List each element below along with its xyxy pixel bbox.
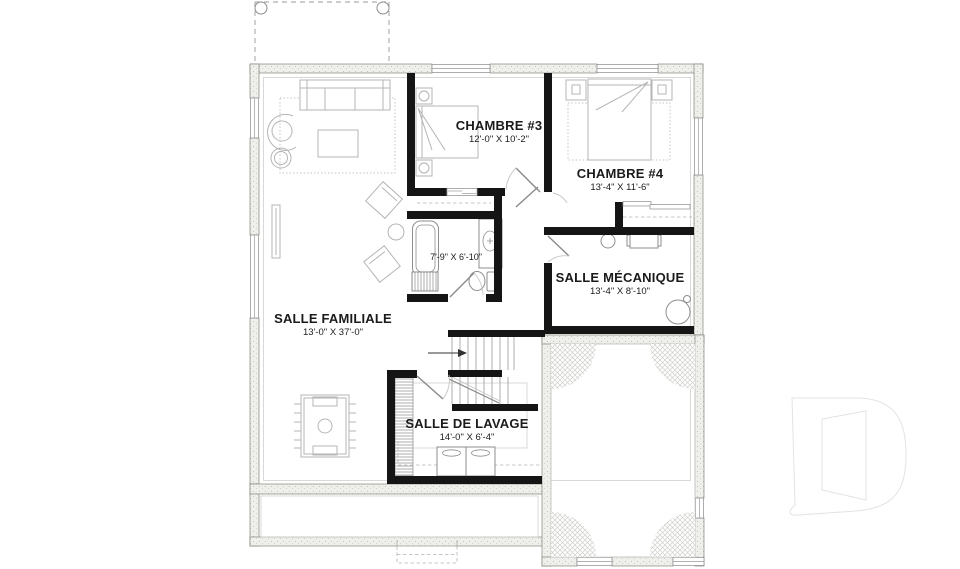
room-dims: 12'-0" X 10'-2" [456, 134, 543, 145]
window-icon [696, 498, 704, 518]
garage-door-icon [673, 558, 704, 566]
room-label-salle-de-lavage: SALLE DE LAVAGE 14'-0" X 6'-4" [405, 416, 528, 443]
deck-post-icon [255, 2, 267, 14]
ottoman [271, 148, 291, 168]
room-label-salle-familiale: SALLE FAMILIALE 13'-0" X 37'-0" [274, 311, 392, 338]
window-icon [577, 558, 612, 566]
linen-shelf [412, 272, 438, 291]
corner-hatch [551, 512, 596, 557]
window-icon [695, 118, 703, 175]
window-icon [432, 65, 490, 73]
nightstand [652, 80, 672, 100]
room-label-bathroom-dims: 7'-9" X 6'-10" [430, 251, 482, 262]
nightstand [416, 88, 432, 104]
pipe-icon [684, 296, 691, 303]
foosball-table [294, 395, 356, 457]
deck-post-icon [377, 2, 389, 14]
room-name: CHAMBRE #4 [577, 166, 664, 181]
room-label-salle-mecanique: SALLE MÉCANIQUE 13'-4" X 8'-10" [556, 270, 685, 297]
coffee-table [318, 130, 358, 157]
room-name: CHAMBRE #3 [456, 118, 543, 133]
armchair [366, 182, 403, 219]
armchair [364, 246, 400, 282]
corner-hatch [650, 344, 695, 389]
stool [601, 234, 615, 248]
bed [588, 79, 651, 160]
nightstand [566, 80, 586, 100]
washer [437, 447, 466, 476]
floor-plan-drawing [0, 0, 960, 569]
room-label-chambre-3: CHAMBRE #3 12'-0" X 10'-2" [456, 118, 543, 145]
family-room-furniture [268, 80, 404, 457]
porch-foundation-line [261, 496, 538, 537]
builder-logo-d-watermark [790, 398, 906, 515]
sofa [300, 80, 390, 110]
side-table [388, 224, 404, 240]
sliding-closet-door [623, 202, 690, 210]
door-mechanical [548, 236, 569, 262]
room-dims: 13'-0" X 37'-0" [274, 327, 392, 338]
garage-area [551, 344, 695, 557]
dryer [466, 447, 495, 476]
corner-hatch [551, 344, 596, 389]
swivel-chair [268, 114, 296, 150]
floor-plan-canvas: CHAMBRE #3 12'-0" X 10'-2" CHAMBRE #4 13… [0, 0, 960, 569]
room-dims: 7'-9" X 6'-10" [430, 252, 482, 262]
window-icon [251, 235, 259, 318]
window-icon [251, 98, 259, 138]
room-dims: 14'-0" X 6'-4" [405, 432, 528, 443]
room-dims: 13'-4" X 11'-6" [577, 182, 664, 193]
window-icon [597, 65, 658, 73]
water-heater-icon [666, 300, 690, 324]
tv-unit [272, 205, 280, 258]
work-table [627, 233, 661, 248]
nightstand [416, 160, 432, 176]
deck-above-outline [255, 2, 389, 64]
room-name: SALLE DE LAVAGE [405, 416, 528, 431]
stair-direction-arrow [428, 349, 467, 357]
bedroom4-furniture [566, 79, 672, 160]
door-bedroom4 [516, 187, 567, 207]
room-label-chambre-4: CHAMBRE #4 13'-4" X 11'-6" [577, 166, 664, 193]
sliding-closet-door [447, 189, 477, 196]
door-bedroom3 [506, 168, 540, 192]
door-laundry [417, 375, 449, 399]
room-name: SALLE MÉCANIQUE [556, 270, 685, 285]
corner-hatch [650, 512, 695, 557]
room-dims: 13'-4" X 8'-10" [556, 286, 685, 297]
room-name: SALLE FAMILIALE [274, 311, 392, 326]
